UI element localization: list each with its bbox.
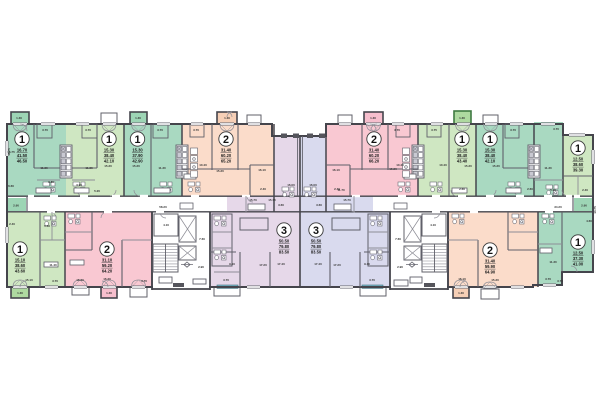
svg-text:1: 1	[575, 237, 581, 249]
svg-text:41.50: 41.50	[17, 153, 28, 158]
svg-text:38.40: 38.40	[485, 153, 496, 158]
svg-text:2: 2	[487, 245, 493, 257]
svg-text:42.90: 42.90	[132, 158, 143, 163]
svg-text:31.40: 31.40	[221, 148, 232, 153]
svg-text:3.70: 3.70	[553, 127, 559, 131]
svg-text:3: 3	[281, 225, 287, 237]
svg-text:3.70: 3.70	[394, 128, 400, 132]
svg-text:7.60: 7.60	[199, 237, 205, 241]
svg-text:10.40: 10.40	[439, 163, 447, 167]
svg-text:50.50: 50.50	[279, 239, 290, 244]
svg-text:1.30: 1.30	[224, 116, 230, 120]
svg-text:2: 2	[371, 134, 377, 146]
svg-text:34.20: 34.20	[554, 205, 562, 209]
svg-text:1.30: 1.30	[459, 116, 465, 120]
svg-text:46.50: 46.50	[17, 158, 28, 163]
svg-text:3.80: 3.80	[48, 180, 54, 184]
svg-text:1: 1	[106, 134, 112, 146]
svg-text:2.40: 2.40	[334, 187, 340, 191]
svg-text:3.75: 3.75	[557, 279, 563, 283]
svg-text:37.90: 37.90	[132, 153, 143, 158]
svg-text:31.10: 31.10	[102, 258, 113, 263]
svg-text:16.10: 16.10	[458, 277, 466, 281]
svg-text:7.60: 7.60	[395, 237, 401, 241]
svg-text:1.30: 1.30	[370, 116, 376, 120]
svg-text:15.30: 15.30	[457, 148, 468, 153]
svg-text:12.50: 12.50	[573, 157, 584, 162]
svg-text:79.80: 79.80	[279, 244, 290, 249]
svg-text:1: 1	[575, 143, 581, 155]
svg-text:15.70: 15.70	[343, 198, 351, 202]
svg-text:2.40: 2.40	[9, 222, 15, 226]
svg-text:1.30: 1.30	[135, 116, 141, 120]
svg-text:79.80: 79.80	[311, 244, 322, 249]
svg-text:15.30: 15.30	[216, 169, 224, 173]
svg-text:3.60: 3.60	[316, 203, 322, 207]
svg-text:42.10: 42.10	[104, 158, 115, 163]
svg-text:2.90: 2.90	[397, 265, 403, 269]
svg-text:59.20: 59.20	[102, 263, 113, 268]
svg-text:9.10: 9.10	[229, 262, 235, 266]
svg-text:10.40: 10.40	[199, 163, 207, 167]
svg-text:11.30: 11.30	[158, 166, 166, 170]
svg-text:60.20: 60.20	[221, 153, 232, 158]
svg-text:2.40: 2.40	[582, 188, 588, 192]
svg-text:3.70: 3.70	[42, 128, 48, 132]
svg-text:11.30: 11.30	[85, 166, 93, 170]
svg-text:37.30: 37.30	[573, 256, 584, 261]
svg-text:4.10: 4.10	[430, 223, 436, 227]
svg-text:3.70: 3.70	[141, 279, 147, 283]
svg-text:3.70: 3.70	[193, 128, 199, 132]
svg-text:3.70: 3.70	[52, 279, 58, 283]
svg-text:11.30: 11.30	[544, 166, 552, 170]
svg-text:38.40: 38.40	[457, 153, 468, 158]
svg-text:15.30: 15.30	[132, 164, 140, 168]
svg-text:4.10: 4.10	[163, 223, 169, 227]
svg-text:15.30: 15.30	[132, 148, 143, 153]
svg-text:3.60: 3.60	[278, 203, 284, 207]
svg-text:15.30: 15.30	[464, 164, 472, 168]
svg-text:6.60: 6.60	[8, 184, 14, 188]
svg-text:1: 1	[487, 134, 493, 146]
svg-text:38.40: 38.40	[104, 153, 115, 158]
svg-text:43.60: 43.60	[15, 268, 26, 273]
svg-text:16.10: 16.10	[332, 168, 340, 172]
svg-text:1: 1	[19, 134, 25, 146]
svg-text:15.30: 15.30	[104, 164, 112, 168]
svg-text:16.10: 16.10	[258, 168, 266, 172]
svg-text:65.20: 65.20	[221, 158, 232, 163]
svg-text:38.60: 38.60	[573, 162, 584, 167]
svg-text:11.30: 11.30	[549, 260, 557, 264]
svg-text:58.20: 58.20	[159, 205, 167, 209]
svg-text:50.50: 50.50	[311, 239, 322, 244]
svg-text:15.30: 15.30	[389, 167, 397, 171]
svg-text:83.50: 83.50	[311, 249, 322, 254]
svg-text:16.70: 16.70	[17, 148, 28, 153]
svg-text:83.50: 83.50	[279, 249, 290, 254]
svg-text:17.20: 17.20	[259, 263, 267, 267]
svg-text:2.90: 2.90	[13, 204, 19, 208]
svg-text:64.90: 64.90	[485, 269, 496, 274]
svg-text:16.30: 16.30	[103, 277, 111, 281]
svg-text:3.70: 3.70	[85, 128, 91, 132]
svg-text:1: 1	[459, 134, 465, 146]
svg-text:39.30: 39.30	[573, 167, 584, 172]
svg-text:2.90: 2.90	[581, 204, 587, 208]
svg-text:59.90: 59.90	[485, 264, 496, 269]
svg-text:3.75: 3.75	[431, 128, 437, 132]
svg-text:11.40: 11.40	[49, 263, 57, 267]
svg-text:2.90: 2.90	[198, 265, 204, 269]
svg-text:11.30: 11.30	[40, 166, 48, 170]
svg-text:2.40: 2.40	[260, 187, 266, 191]
svg-text:16.00: 16.00	[287, 183, 295, 187]
svg-text:16.30: 16.30	[76, 278, 84, 282]
svg-text:16.75: 16.75	[7, 150, 15, 154]
svg-text:3: 3	[313, 225, 319, 237]
svg-text:1.30: 1.30	[458, 291, 464, 295]
svg-text:3.70: 3.70	[510, 128, 516, 132]
svg-text:3.90: 3.90	[76, 183, 82, 187]
svg-text:42.10: 42.10	[485, 158, 496, 163]
svg-text:17.40: 17.40	[314, 262, 322, 266]
svg-text:3.70: 3.70	[157, 128, 163, 132]
svg-text:31.40: 31.40	[485, 259, 496, 264]
svg-text:1.30: 1.30	[106, 291, 112, 295]
svg-text:3.70: 3.70	[545, 277, 551, 281]
svg-text:2.60: 2.60	[527, 187, 533, 191]
svg-text:15.10: 15.10	[25, 278, 33, 282]
svg-text:43.40: 43.40	[457, 158, 468, 163]
svg-text:9.10: 9.10	[364, 262, 370, 266]
svg-text:15.30: 15.30	[491, 278, 499, 282]
svg-text:5.30: 5.30	[44, 224, 50, 228]
svg-text:3.70: 3.70	[223, 278, 229, 282]
svg-text:1: 1	[17, 244, 23, 256]
svg-text:64.20: 64.20	[102, 268, 113, 273]
svg-text:66.20: 66.20	[369, 158, 380, 163]
svg-text:38.60: 38.60	[15, 263, 26, 268]
svg-text:2.60: 2.60	[459, 187, 465, 191]
svg-text:4.60: 4.60	[586, 219, 592, 223]
svg-text:31.40: 31.40	[369, 148, 380, 153]
svg-text:2: 2	[223, 134, 229, 146]
svg-text:5.20: 5.20	[550, 188, 556, 192]
svg-text:15.10: 15.10	[15, 258, 26, 263]
svg-text:16.00: 16.00	[309, 183, 317, 187]
svg-text:5.20: 5.20	[94, 189, 100, 193]
svg-text:12.50: 12.50	[573, 251, 584, 256]
svg-text:2: 2	[104, 244, 110, 256]
svg-text:15.30: 15.30	[104, 148, 115, 153]
svg-text:17.20: 17.20	[333, 263, 341, 267]
svg-text:15.75: 15.75	[268, 198, 276, 202]
svg-text:1: 1	[134, 134, 140, 146]
svg-text:3.70: 3.70	[369, 278, 375, 282]
svg-text:10.40: 10.40	[396, 163, 404, 167]
svg-text:1.30: 1.30	[17, 291, 23, 295]
svg-text:15.30: 15.30	[492, 164, 500, 168]
svg-text:41.00: 41.00	[573, 261, 584, 266]
svg-text:15.30: 15.30	[485, 148, 496, 153]
svg-text:14.75: 14.75	[593, 206, 597, 214]
svg-text:60.20: 60.20	[369, 153, 380, 158]
svg-text:17.40: 17.40	[277, 262, 285, 266]
svg-text:1.30: 1.30	[16, 116, 22, 120]
svg-text:15.70: 15.70	[249, 198, 257, 202]
